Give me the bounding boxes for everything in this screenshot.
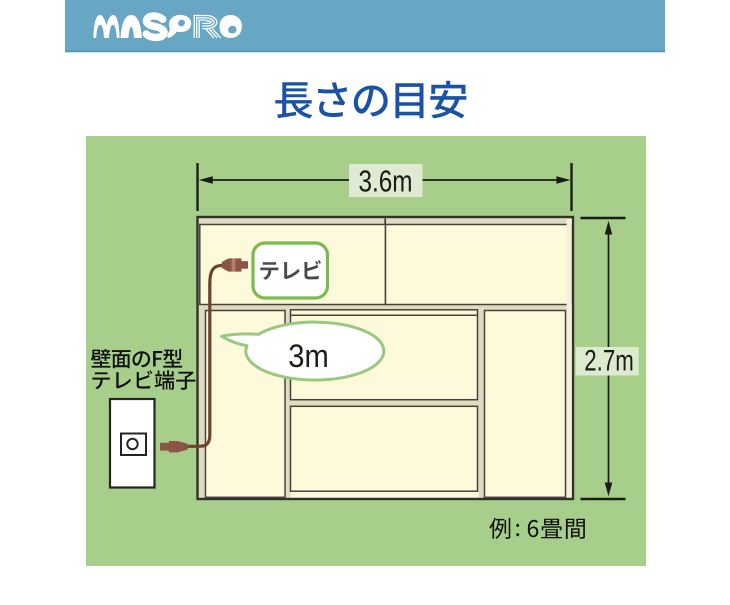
svg-text:3.6m: 3.6m [359,165,413,199]
svg-text:2.7m: 2.7m [584,344,634,377]
svg-text:3m: 3m [288,338,329,374]
